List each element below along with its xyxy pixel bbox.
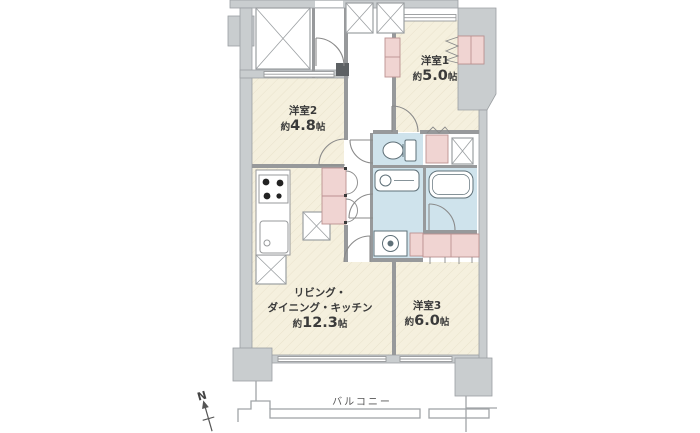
floor-western1-ext: [458, 110, 479, 132]
pillar-bottom-right: [455, 358, 492, 396]
closet-entry: [385, 38, 400, 77]
wall-right: [479, 110, 487, 360]
shaft-kitchen-bottom: [256, 255, 286, 284]
wall-left: [240, 8, 252, 352]
wall-genkan-left: [312, 8, 315, 78]
balcony-railing: [270, 409, 420, 418]
wall-toilet-bottom: [373, 165, 477, 168]
kitchen: [256, 170, 290, 255]
entry-opening: [315, 1, 343, 7]
balcony-label: バルコニー: [332, 396, 392, 408]
balcony-step: [238, 401, 270, 422]
pipe-shaft-bath: [452, 138, 473, 164]
wall-western3-left: [392, 262, 396, 355]
floor-plan: 洋室1 約5.0帖 洋室2 約4.8帖 リビング・ ダイニング・キッチン 約12…: [0, 0, 700, 433]
room-label-western3: 洋室3: [413, 299, 441, 312]
wall-western3-top: [370, 258, 423, 262]
room-label-ldk-line1: リビング・: [294, 286, 347, 299]
compass-north-label: N: [196, 389, 208, 404]
floor-corridor: [346, 168, 373, 262]
washing-machine-pan-icon: [374, 231, 407, 256]
elevator-shaft: [256, 8, 310, 69]
washbasin-icon: [375, 170, 419, 191]
kitchen-stove-icon: [259, 175, 288, 203]
north-arrow-icon: N: [194, 388, 217, 433]
door-toilet-icon: [350, 140, 373, 163]
closet-washroom-side: [410, 233, 423, 256]
balcony-railing: [429, 409, 489, 418]
pipe-shaft-2: [377, 3, 404, 33]
room-label-western2: 洋室2: [289, 104, 317, 117]
wall-top: [230, 0, 458, 8]
closet-western3: [423, 234, 479, 264]
wall-bath-left: [423, 168, 426, 230]
wall-bath-bottom: [423, 230, 477, 234]
shoe-cabinet: [336, 63, 349, 76]
bathtub-icon: [429, 171, 473, 198]
entry-door-icon: [316, 38, 344, 66]
kitchen-sink-icon: [260, 221, 288, 253]
pipe-shaft-1: [346, 3, 373, 33]
pillar-bottom-left: [233, 348, 272, 381]
room-label-western1: 洋室1: [421, 54, 449, 67]
room-label-ldk-line2: ダイニング・キッチン: [268, 301, 373, 314]
